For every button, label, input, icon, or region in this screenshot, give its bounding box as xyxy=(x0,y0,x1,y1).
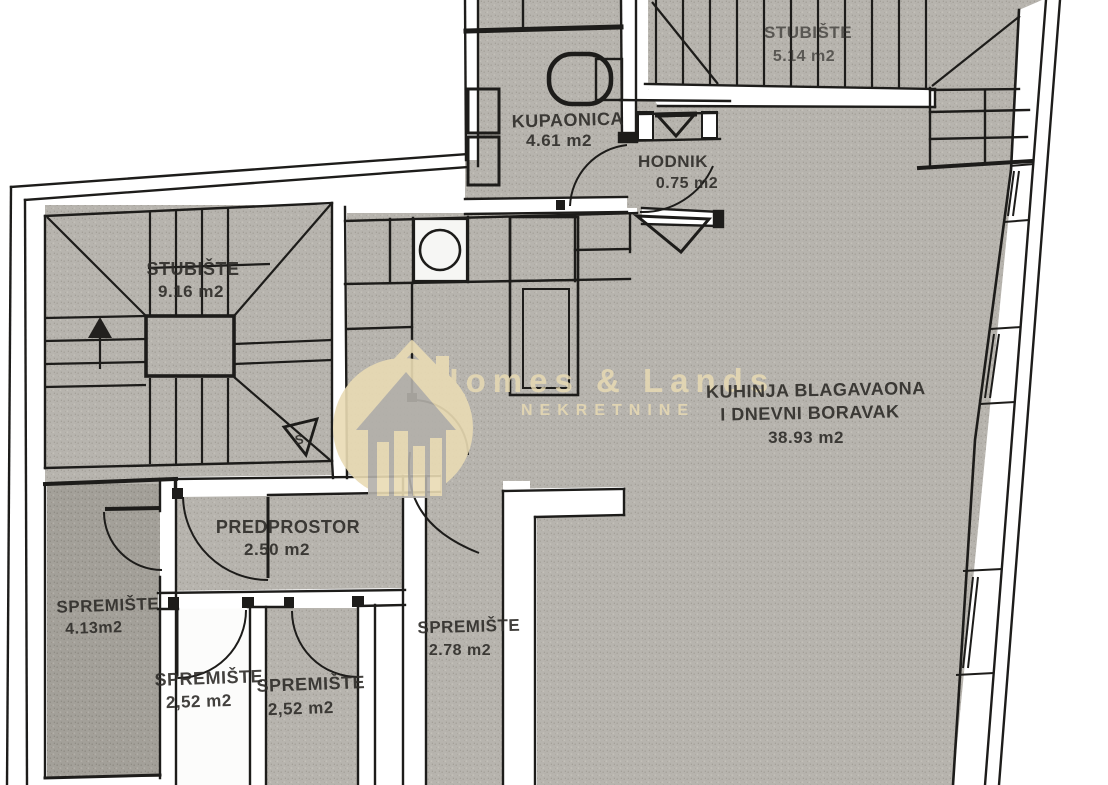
room-label-hodnik: HODNIK xyxy=(638,152,708,171)
room-label-spremiste-413: SPREMIŠTE xyxy=(56,594,159,617)
room-area-hodnik: 0.75 m2 xyxy=(656,175,718,192)
floor-plan-drawing: Homes & Lands NEKRETNINE STUBIŠTE 5.14 m… xyxy=(0,0,1108,785)
floor-spremiste-252b xyxy=(266,608,358,785)
room-area-spremiste-278: 2.78 m2 xyxy=(429,642,491,659)
room-area-spremiste-413: 4.13m2 xyxy=(65,619,123,638)
room-label-stubiste-left: STUBIŠTE xyxy=(146,258,239,279)
room-label-predprostor: PREDPROSTOR xyxy=(216,517,360,537)
room-area-kupaonica: 4.61 m2 xyxy=(526,131,592,150)
room-label-kuhinja-line1: KUHINJA BLAGAVAONA xyxy=(706,378,926,402)
room-area-predprostor: 2.50 m2 xyxy=(244,540,310,559)
room-label-spremiste-278: SPREMIŠTE xyxy=(417,616,520,638)
watermark-tagline: NEKRETNINE xyxy=(521,402,695,419)
floor-plan: Homes & Lands NEKRETNINE STUBIŠTE 5.14 m… xyxy=(0,0,1108,785)
room-area-spremiste-252a: 2,52 m2 xyxy=(166,691,233,712)
floor-stair-left xyxy=(45,205,332,484)
room-area-stubiste-left: 9.16 m2 xyxy=(158,282,224,301)
room-area-kuhinja: 38.93 m2 xyxy=(768,428,844,447)
floor-spremiste-278 xyxy=(426,496,503,785)
room-area-spremiste-252b: 2,52 m2 xyxy=(268,698,335,719)
room-label-spremiste-252b: SPREMIŠTE xyxy=(256,671,365,696)
room-label-stubiste-top: STUBIŠTE xyxy=(764,23,852,42)
room-area-stubiste-top: 5.14 m2 xyxy=(773,48,835,65)
room-label-kupaonica: KUPAONICA xyxy=(512,109,625,132)
room-label-spremiste-252a: SPREMIŠTE xyxy=(154,665,263,690)
room-label-kuhinja-line2: I DNEVNI BORAVAK xyxy=(720,401,900,424)
